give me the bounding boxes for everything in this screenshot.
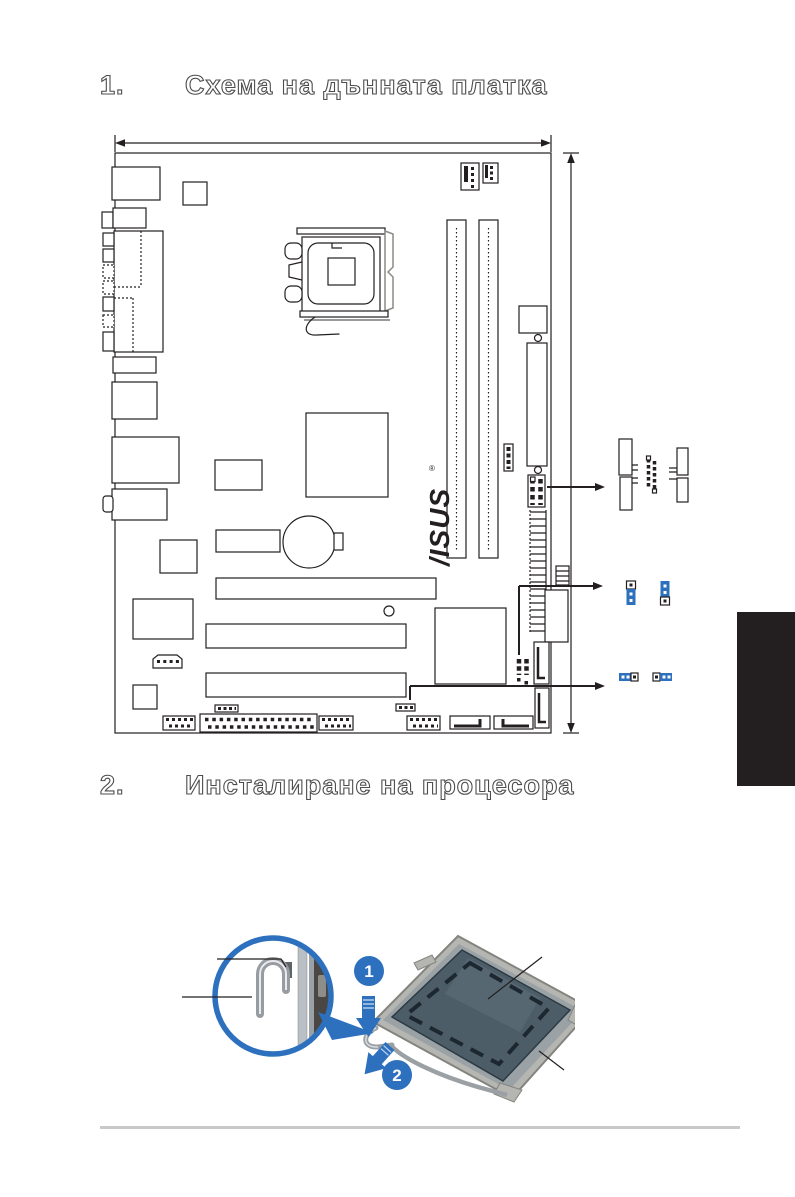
bios-chip xyxy=(133,685,157,709)
4pin-header xyxy=(504,444,513,471)
board-height-dimension-arrow xyxy=(563,153,579,733)
svg-text:®: ® xyxy=(429,464,435,473)
pci-slot-2 xyxy=(206,673,406,697)
chipset-2 xyxy=(215,460,262,490)
step1-number: 1 xyxy=(364,962,373,981)
footer-divider xyxy=(100,1126,740,1129)
chip-small xyxy=(160,540,197,573)
callout-arrow-front-panel xyxy=(547,483,605,491)
svg-text:/ISUS: /ISUS xyxy=(424,488,455,568)
language-tab xyxy=(737,612,795,786)
connector-block xyxy=(519,306,547,333)
step2-number: 2 xyxy=(392,1066,401,1085)
vga-com-block xyxy=(114,231,163,352)
atx-power-connector xyxy=(527,343,547,466)
step2-marker: 2 xyxy=(356,1038,412,1090)
slot-small xyxy=(216,530,280,552)
board-width-dimension-arrow xyxy=(115,135,551,152)
motherboard-layout-diagram: /ISUS ® xyxy=(88,128,795,758)
small-connector xyxy=(183,182,207,205)
jumper-3pin-horizontal-setting2 xyxy=(653,673,672,681)
io-chip xyxy=(133,599,193,639)
ps2-port xyxy=(112,167,160,200)
section1-number: 1. xyxy=(100,70,125,100)
cpu-install-illustration: 1 2 xyxy=(175,925,575,1115)
section2-heading: 2. Инсталиране на процесора xyxy=(88,760,648,808)
pci-slot-1 xyxy=(206,624,406,648)
jumper-3pin-horizontal-setting1 xyxy=(619,673,638,681)
jumper-3pin-vertical-setting2 xyxy=(661,581,670,605)
front-panel-header xyxy=(528,475,545,507)
pcie-x16-slot xyxy=(216,578,436,599)
audio-ports xyxy=(112,489,167,520)
southbridge-chip xyxy=(435,608,506,684)
jumper-3pin-vertical-setting1 xyxy=(627,581,636,605)
section2-title: Инсталиране на процесора xyxy=(185,770,574,800)
fdd-connector xyxy=(545,590,568,642)
usb-ports xyxy=(112,382,157,419)
manual-page: 1. Схема на дънната платка xyxy=(0,0,795,1197)
front-panel-pinout-diagram xyxy=(619,439,688,510)
section1-title: Схема на дънната платка xyxy=(185,70,548,100)
lan-usb-block xyxy=(112,437,179,483)
northbridge-chip xyxy=(306,413,388,497)
section2-number: 2. xyxy=(100,770,125,800)
front-audio-connector xyxy=(153,655,182,668)
lever-hook-detail xyxy=(260,961,286,1014)
magnifier-inset xyxy=(182,925,374,1070)
section1-heading: 1. Схема на дънната платка xyxy=(88,60,608,108)
